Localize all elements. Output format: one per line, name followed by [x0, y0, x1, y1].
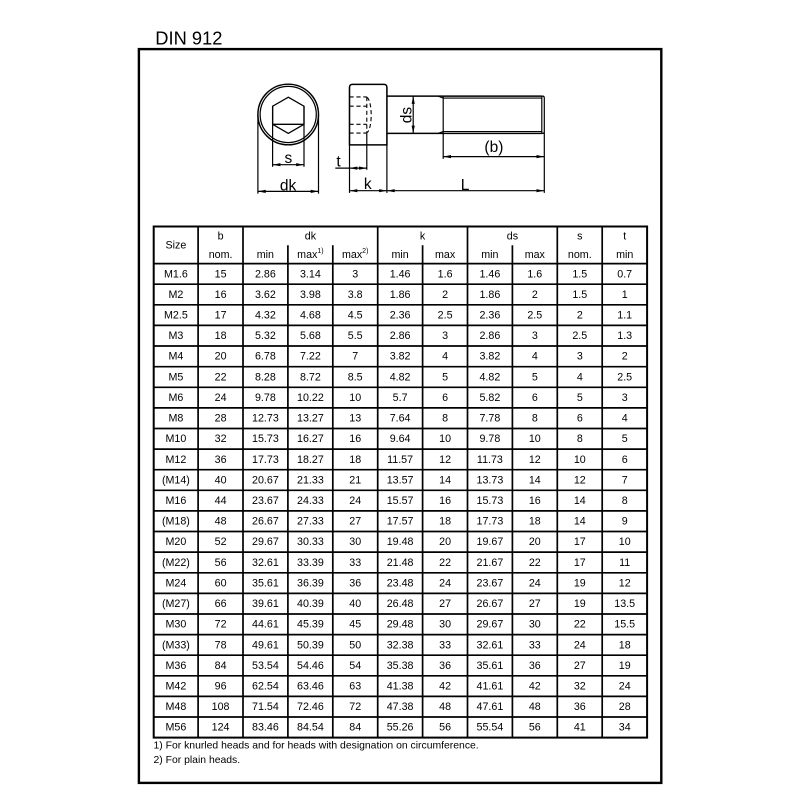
svg-text:41.38: 41.38	[387, 681, 414, 693]
svg-text:48: 48	[529, 701, 541, 713]
svg-text:dk: dk	[305, 230, 317, 242]
svg-text:5: 5	[532, 371, 538, 383]
svg-text:40: 40	[349, 598, 361, 610]
svg-text:2: 2	[442, 289, 448, 301]
svg-text:M2: M2	[168, 289, 183, 301]
svg-text:29.67: 29.67	[477, 619, 504, 631]
svg-text:56: 56	[439, 722, 451, 734]
svg-text:17: 17	[574, 557, 586, 569]
svg-text:10.22: 10.22	[297, 392, 324, 404]
svg-text:16: 16	[529, 495, 541, 507]
svg-text:9.78: 9.78	[479, 433, 500, 445]
svg-text:3: 3	[532, 330, 538, 342]
svg-text:62.54: 62.54	[252, 681, 279, 693]
svg-text:3.14: 3.14	[300, 268, 321, 280]
svg-text:63.46: 63.46	[297, 681, 324, 693]
svg-text:18: 18	[439, 516, 451, 528]
svg-text:5: 5	[577, 392, 583, 404]
svg-text:1.46: 1.46	[390, 268, 411, 280]
svg-text:32: 32	[574, 681, 586, 693]
svg-text:M36: M36	[166, 660, 187, 672]
svg-text:2.5: 2.5	[438, 310, 453, 322]
svg-text:min: min	[481, 249, 498, 261]
svg-text:t: t	[336, 153, 341, 170]
svg-text:3: 3	[577, 351, 583, 363]
svg-text:5: 5	[442, 371, 448, 383]
svg-text:9.64: 9.64	[390, 433, 411, 445]
svg-text:0.7: 0.7	[617, 268, 632, 280]
svg-text:20.67: 20.67	[252, 474, 279, 486]
svg-text:4: 4	[532, 351, 538, 363]
svg-text:k: k	[364, 176, 372, 193]
svg-text:53.54: 53.54	[252, 660, 279, 672]
svg-text:13.57: 13.57	[387, 474, 414, 486]
svg-text:M2.5: M2.5	[164, 310, 188, 322]
svg-text:13.27: 13.27	[297, 413, 324, 425]
svg-text:23.48: 23.48	[387, 578, 414, 590]
svg-text:3.62: 3.62	[255, 289, 276, 301]
svg-text:96: 96	[215, 681, 227, 693]
svg-text:Size: Size	[166, 240, 187, 252]
svg-text:52: 52	[215, 536, 227, 548]
svg-text:6: 6	[622, 454, 628, 466]
svg-text:45.39: 45.39	[297, 619, 324, 631]
svg-text:7: 7	[622, 474, 628, 486]
svg-text:min: min	[616, 249, 633, 261]
svg-text:2) For plain heads.: 2) For plain heads.	[154, 755, 241, 766]
svg-text:18.27: 18.27	[297, 454, 324, 466]
svg-text:40.39: 40.39	[297, 598, 324, 610]
svg-text:1.86: 1.86	[479, 289, 500, 301]
svg-text:2.5: 2.5	[572, 330, 587, 342]
svg-text:36: 36	[215, 454, 227, 466]
svg-text:7.78: 7.78	[479, 413, 500, 425]
svg-text:15: 15	[215, 268, 227, 280]
svg-text:19: 19	[574, 578, 586, 590]
svg-text:29.67: 29.67	[252, 536, 279, 548]
svg-text:32: 32	[215, 433, 227, 445]
svg-text:40: 40	[215, 474, 227, 486]
svg-text:19: 19	[619, 660, 631, 672]
svg-text:36: 36	[529, 660, 541, 672]
svg-text:21.33: 21.33	[297, 474, 324, 486]
svg-text:20: 20	[529, 536, 541, 548]
svg-text:15.5: 15.5	[614, 619, 635, 631]
svg-text:41: 41	[574, 722, 586, 734]
svg-text:72: 72	[215, 619, 227, 631]
svg-text:23.67: 23.67	[477, 578, 504, 590]
svg-text:7.22: 7.22	[300, 351, 321, 363]
svg-text:s: s	[285, 150, 293, 167]
svg-text:13: 13	[349, 413, 361, 425]
svg-text:10: 10	[349, 392, 361, 404]
svg-text:4.32: 4.32	[255, 310, 276, 322]
svg-text:30: 30	[349, 536, 361, 548]
svg-text:27: 27	[439, 598, 451, 610]
svg-text:DIN 912: DIN 912	[155, 28, 222, 49]
svg-text:12: 12	[574, 474, 586, 486]
svg-text:20: 20	[215, 351, 227, 363]
svg-text:(b): (b)	[484, 139, 503, 156]
svg-text:M12: M12	[166, 454, 187, 466]
svg-text:35.61: 35.61	[477, 660, 504, 672]
svg-text:124: 124	[212, 722, 230, 734]
svg-text:28: 28	[215, 413, 227, 425]
svg-text:1: 1	[622, 289, 628, 301]
svg-text:14: 14	[529, 474, 541, 486]
svg-text:24: 24	[349, 495, 361, 507]
svg-text:4.82: 4.82	[479, 371, 500, 383]
svg-text:18: 18	[529, 516, 541, 528]
svg-text:1.3: 1.3	[617, 330, 632, 342]
svg-text:4: 4	[442, 351, 448, 363]
svg-text:2.86: 2.86	[255, 268, 276, 280]
svg-text:(M22): (M22)	[162, 557, 190, 569]
svg-text:6: 6	[442, 392, 448, 404]
svg-text:83.46: 83.46	[252, 722, 279, 734]
svg-text:5.32: 5.32	[255, 330, 276, 342]
svg-text:27: 27	[349, 516, 361, 528]
svg-text:dk: dk	[280, 178, 297, 195]
svg-text:3.8: 3.8	[348, 289, 363, 301]
svg-text:33: 33	[349, 557, 361, 569]
svg-text:22: 22	[439, 557, 451, 569]
svg-text:(M33): (M33)	[162, 639, 190, 651]
svg-text:b: b	[218, 230, 224, 242]
svg-text:55.26: 55.26	[387, 722, 414, 734]
svg-text:32.61: 32.61	[477, 639, 504, 651]
svg-text:17.73: 17.73	[252, 454, 279, 466]
svg-text:7.64: 7.64	[390, 413, 411, 425]
svg-text:36.39: 36.39	[297, 578, 324, 590]
svg-text:47.38: 47.38	[387, 701, 414, 713]
svg-text:72.46: 72.46	[297, 701, 324, 713]
svg-text:15.73: 15.73	[477, 495, 504, 507]
svg-text:L: L	[461, 177, 470, 194]
svg-text:M6: M6	[168, 392, 183, 404]
svg-text:8.28: 8.28	[255, 371, 276, 383]
svg-text:8: 8	[532, 413, 538, 425]
svg-text:6: 6	[532, 392, 538, 404]
svg-text:1.5: 1.5	[572, 289, 587, 301]
svg-text:21.48: 21.48	[387, 557, 414, 569]
svg-text:14: 14	[574, 516, 586, 528]
svg-text:nom.: nom.	[209, 249, 233, 261]
svg-text:36: 36	[574, 701, 586, 713]
svg-text:33.39: 33.39	[297, 557, 324, 569]
svg-text:47.61: 47.61	[477, 701, 504, 713]
svg-text:16.27: 16.27	[297, 433, 324, 445]
svg-text:10: 10	[529, 433, 541, 445]
svg-text:k: k	[420, 230, 426, 242]
svg-text:22: 22	[529, 557, 541, 569]
svg-text:19.67: 19.67	[477, 536, 504, 548]
svg-text:M5: M5	[168, 371, 183, 383]
svg-text:27.33: 27.33	[297, 516, 324, 528]
svg-text:42: 42	[439, 681, 451, 693]
svg-text:max: max	[525, 249, 546, 261]
svg-text:2.36: 2.36	[479, 310, 500, 322]
svg-text:max: max	[435, 249, 456, 261]
svg-text:10: 10	[574, 454, 586, 466]
svg-text:50.39: 50.39	[297, 639, 324, 651]
svg-text:27: 27	[574, 660, 586, 672]
svg-text:3.98: 3.98	[300, 289, 321, 301]
svg-text:28: 28	[619, 701, 631, 713]
svg-text:56: 56	[529, 722, 541, 734]
svg-text:48: 48	[215, 516, 227, 528]
svg-text:10: 10	[619, 536, 631, 548]
svg-text:2.5: 2.5	[527, 310, 542, 322]
svg-text:12.73: 12.73	[252, 413, 279, 425]
svg-text:(M14): (M14)	[162, 474, 190, 486]
svg-text:(M18): (M18)	[162, 516, 190, 528]
svg-text:36: 36	[439, 660, 451, 672]
svg-text:5.82: 5.82	[479, 392, 500, 404]
svg-text:8.5: 8.5	[348, 371, 363, 383]
svg-text:M3: M3	[168, 330, 183, 342]
svg-text:nom.: nom.	[568, 249, 592, 261]
svg-text:M10: M10	[166, 433, 187, 445]
svg-text:26.48: 26.48	[387, 598, 414, 610]
svg-text:24: 24	[529, 578, 541, 590]
svg-text:17: 17	[574, 536, 586, 548]
svg-text:1.46: 1.46	[479, 268, 500, 280]
svg-text:19.48: 19.48	[387, 536, 414, 548]
svg-text:24: 24	[439, 578, 451, 590]
svg-text:ds: ds	[507, 230, 518, 242]
svg-text:45: 45	[349, 619, 361, 631]
svg-text:42: 42	[529, 681, 541, 693]
svg-text:84.54: 84.54	[297, 722, 324, 734]
svg-text:8: 8	[442, 413, 448, 425]
svg-text:8.72: 8.72	[300, 371, 321, 383]
svg-text:1.6: 1.6	[438, 268, 453, 280]
svg-text:11.57: 11.57	[387, 454, 413, 466]
svg-text:9: 9	[622, 516, 628, 528]
svg-text:1.6: 1.6	[527, 268, 542, 280]
svg-text:17.57: 17.57	[387, 516, 414, 528]
svg-text:5.68: 5.68	[300, 330, 321, 342]
svg-text:14: 14	[439, 474, 451, 486]
svg-text:16: 16	[215, 289, 227, 301]
svg-text:35.61: 35.61	[252, 578, 279, 590]
svg-text:30.33: 30.33	[297, 536, 324, 548]
svg-text:3: 3	[622, 392, 628, 404]
svg-text:17.73: 17.73	[477, 516, 504, 528]
svg-text:26.67: 26.67	[252, 516, 279, 528]
svg-text:2.5: 2.5	[617, 371, 632, 383]
svg-text:18: 18	[619, 639, 631, 651]
svg-text:M48: M48	[166, 701, 187, 713]
svg-text:30: 30	[529, 619, 541, 631]
svg-text:10: 10	[439, 433, 451, 445]
svg-text:15.73: 15.73	[252, 433, 279, 445]
svg-text:(M27): (M27)	[162, 598, 190, 610]
svg-text:12: 12	[619, 578, 631, 590]
svg-text:2: 2	[622, 351, 628, 363]
svg-text:24: 24	[574, 639, 586, 651]
svg-text:72: 72	[349, 701, 361, 713]
svg-text:16: 16	[349, 433, 361, 445]
svg-text:8: 8	[622, 495, 628, 507]
svg-text:20: 20	[439, 536, 451, 548]
svg-text:8: 8	[577, 433, 583, 445]
svg-text:ds: ds	[399, 107, 416, 124]
svg-text:23.67: 23.67	[252, 495, 279, 507]
svg-text:36: 36	[349, 578, 361, 590]
svg-text:5: 5	[622, 433, 628, 445]
svg-text:1.1: 1.1	[617, 310, 632, 322]
svg-text:21: 21	[349, 474, 361, 486]
svg-text:M8: M8	[168, 413, 183, 425]
svg-text:M4: M4	[168, 351, 183, 363]
svg-text:1.86: 1.86	[390, 289, 411, 301]
svg-text:49.61: 49.61	[252, 639, 279, 651]
svg-text:4.5: 4.5	[348, 310, 363, 322]
svg-text:19: 19	[574, 598, 586, 610]
svg-text:3.82: 3.82	[479, 351, 500, 363]
svg-text:1.5: 1.5	[572, 268, 587, 280]
svg-text:78: 78	[215, 639, 227, 651]
svg-text:33: 33	[529, 639, 541, 651]
svg-text:3.82: 3.82	[390, 351, 411, 363]
svg-text:11.73: 11.73	[477, 454, 503, 466]
svg-text:2.86: 2.86	[390, 330, 411, 342]
svg-text:34: 34	[619, 722, 631, 734]
svg-text:44.61: 44.61	[252, 619, 279, 631]
svg-text:s: s	[577, 230, 582, 242]
svg-text:26.67: 26.67	[477, 598, 504, 610]
svg-text:M42: M42	[166, 681, 187, 693]
svg-text:t: t	[623, 230, 626, 242]
svg-text:4: 4	[622, 413, 628, 425]
svg-text:M56: M56	[166, 722, 187, 734]
svg-text:15.57: 15.57	[387, 495, 414, 507]
svg-text:M1.6: M1.6	[164, 268, 188, 280]
svg-text:63: 63	[349, 681, 361, 693]
svg-text:5.5: 5.5	[348, 330, 363, 342]
svg-text:24.33: 24.33	[297, 495, 324, 507]
svg-text:12: 12	[529, 454, 541, 466]
svg-text:39.61: 39.61	[252, 598, 279, 610]
svg-text:12: 12	[439, 454, 451, 466]
svg-text:2: 2	[577, 310, 583, 322]
svg-text:22: 22	[574, 619, 586, 631]
svg-text:5.7: 5.7	[393, 392, 408, 404]
svg-text:50: 50	[349, 639, 361, 651]
svg-text:44: 44	[215, 495, 227, 507]
svg-text:13.5: 13.5	[614, 598, 635, 610]
svg-text:M20: M20	[166, 536, 187, 548]
svg-text:32.38: 32.38	[387, 639, 414, 651]
svg-text:4.82: 4.82	[390, 371, 411, 383]
svg-text:M16: M16	[166, 495, 187, 507]
svg-text:4: 4	[577, 371, 583, 383]
svg-text:max1): max1)	[297, 247, 323, 261]
svg-text:3: 3	[352, 268, 358, 280]
svg-text:18: 18	[349, 454, 361, 466]
svg-text:min: min	[257, 249, 274, 261]
svg-text:2.86: 2.86	[479, 330, 500, 342]
svg-text:max2): max2)	[342, 247, 368, 261]
svg-text:M30: M30	[166, 619, 187, 631]
svg-text:35.38: 35.38	[387, 660, 414, 672]
svg-text:66: 66	[215, 598, 227, 610]
svg-text:14: 14	[574, 495, 586, 507]
svg-text:13.73: 13.73	[477, 474, 504, 486]
svg-text:7: 7	[352, 351, 358, 363]
svg-text:71.54: 71.54	[252, 701, 279, 713]
svg-text:54: 54	[349, 660, 361, 672]
svg-text:min: min	[391, 249, 408, 261]
svg-text:60: 60	[215, 578, 227, 590]
svg-text:108: 108	[212, 701, 230, 713]
svg-text:41.61: 41.61	[477, 681, 504, 693]
svg-text:6: 6	[577, 413, 583, 425]
svg-text:54.46: 54.46	[297, 660, 324, 672]
svg-text:29.48: 29.48	[387, 619, 414, 631]
svg-text:30: 30	[439, 619, 451, 631]
svg-text:84: 84	[215, 660, 227, 672]
svg-text:32.61: 32.61	[252, 557, 279, 569]
svg-text:M24: M24	[166, 578, 187, 590]
svg-text:18: 18	[215, 330, 227, 342]
svg-text:4.68: 4.68	[300, 310, 321, 322]
svg-text:2: 2	[532, 289, 538, 301]
svg-text:48: 48	[439, 701, 451, 713]
svg-text:16: 16	[439, 495, 451, 507]
svg-text:2.36: 2.36	[390, 310, 411, 322]
svg-text:6.78: 6.78	[255, 351, 276, 363]
svg-text:84: 84	[349, 722, 361, 734]
svg-text:33: 33	[439, 639, 451, 651]
svg-text:3: 3	[442, 330, 448, 342]
svg-text:22: 22	[215, 371, 227, 383]
svg-text:21.67: 21.67	[477, 557, 504, 569]
svg-text:24: 24	[215, 392, 227, 404]
svg-text:27: 27	[529, 598, 541, 610]
svg-text:11: 11	[619, 557, 630, 569]
svg-text:55.54: 55.54	[477, 722, 504, 734]
svg-text:17: 17	[215, 310, 227, 322]
svg-text:56: 56	[215, 557, 227, 569]
svg-text:24: 24	[619, 681, 631, 693]
svg-text:1) For knurled heads and for h: 1) For knurled heads and for heads with …	[154, 741, 479, 752]
svg-text:9.78: 9.78	[255, 392, 276, 404]
